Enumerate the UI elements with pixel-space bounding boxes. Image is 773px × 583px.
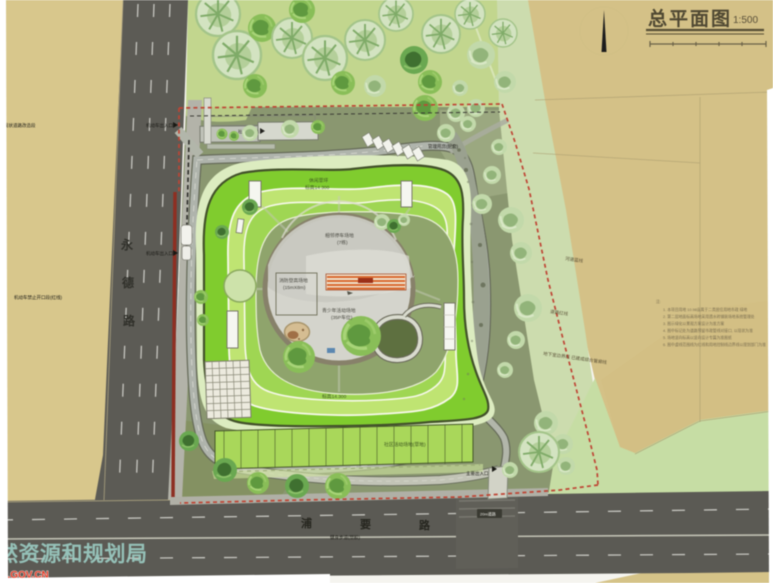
svg-text:2. 第二层地面标高场地采用透水砖铺装场地系统管理处: 2. 第二层地面标高场地采用透水砖铺装场地系统管理处 bbox=[663, 314, 755, 319]
svg-text:德: 德 bbox=[122, 275, 134, 290]
svg-text:(15mX8m): (15mX8m) bbox=[283, 285, 306, 291]
svg-text:(35P车位): (35P车位) bbox=[331, 314, 353, 321]
svg-text:社区活动场地(草地): 社区活动场地(草地) bbox=[384, 441, 426, 448]
svg-text:然资源和规划局: 然资源和规划局 bbox=[0, 542, 148, 566]
svg-text:管理用房(配套): 管理用房(配套) bbox=[428, 143, 458, 150]
svg-text:青少年活动场地: 青少年活动场地 bbox=[322, 307, 356, 314]
svg-text:相邻停车场地: 相邻停车场地 bbox=[325, 232, 354, 239]
svg-text:主要出入口: 主要出入口 bbox=[466, 470, 489, 477]
svg-text:4. 图中标记处为道路预留市政管线对接口, 以现状为准: 4. 图中标记处为道路预留市政管线对接口, 以现状为准 bbox=[663, 328, 753, 333]
svg-text:要: 要 bbox=[360, 518, 371, 531]
svg-text:路: 路 bbox=[419, 518, 431, 532]
svg-text:机动车出入口: 机动车出入口 bbox=[146, 250, 173, 257]
svg-text:现状道路改造段: 现状道路改造段 bbox=[4, 122, 36, 129]
svg-text:总平面图: 总平面图 bbox=[648, 7, 732, 30]
svg-text:1. 本项目用地 10.98亩属于二类居住用地市政 绿地: 1. 本项目用地 10.98亩属于二类居住用地市政 绿地 bbox=[663, 307, 747, 312]
svg-text:3. 图示绿化以景观方案设计为准方案: 3. 图示绿化以景观方案设计为准方案 bbox=[663, 321, 724, 326]
svg-text:注:: 注: bbox=[656, 299, 661, 304]
svg-text:健身步道(塑胶): 健身步道(塑胶) bbox=[330, 534, 360, 541]
svg-text:20m道路: 20m道路 bbox=[480, 511, 496, 517]
svg-text:6. 图中虚线范围线为红线和用地控制线边界线以规划部门为准: 6. 图中虚线范围线为红线和用地控制线边界线以规划部门为准 bbox=[663, 342, 766, 347]
svg-text:休闲草坪: 休闲草坪 bbox=[309, 177, 328, 184]
svg-text:5. 场地竖向标高以竖向设计专篇为准图纸: 5. 场地竖向标高以竖向设计专篇为准图纸 bbox=[663, 335, 732, 340]
svg-text:机动车出入口: 机动车出入口 bbox=[146, 122, 173, 129]
svg-text:标高14.300: 标高14.300 bbox=[305, 184, 330, 191]
svg-text:浦: 浦 bbox=[301, 516, 312, 530]
svg-text:路: 路 bbox=[123, 313, 136, 328]
svg-text:1:500: 1:500 bbox=[733, 15, 758, 26]
svg-text:标高14.300: 标高14.300 bbox=[322, 393, 347, 400]
svg-text:(7栋): (7栋) bbox=[337, 239, 348, 246]
svg-text:机动车禁止开口段(红线): 机动车禁止开口段(红线) bbox=[14, 294, 62, 301]
svg-text:永: 永 bbox=[120, 237, 133, 252]
svg-text:消防登高场地: 消防登高场地 bbox=[279, 277, 308, 284]
